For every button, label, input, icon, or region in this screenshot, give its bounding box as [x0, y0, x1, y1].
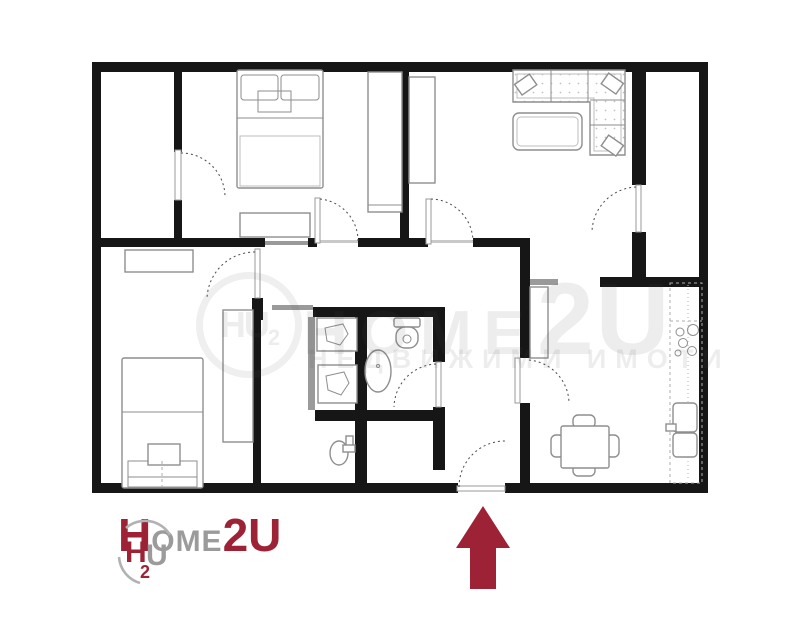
sink-drainer — [673, 433, 697, 457]
emblem-sub-2: 2 — [140, 562, 150, 582]
logo-emblem: H U 2 — [110, 510, 184, 594]
floor-plan-page: HU2 HOME2U НЕДВИЖИМИ ИМОТИ H U 2 HOME2U — [0, 0, 800, 640]
toilet-tank — [394, 318, 420, 327]
table-top — [561, 426, 609, 468]
door-entrance — [457, 441, 505, 491]
door-living-room — [426, 199, 473, 244]
wardrobe — [223, 310, 253, 442]
washing-machine — [317, 318, 357, 351]
living-room-furniture — [409, 70, 625, 183]
door-bedroom-1 — [315, 198, 358, 243]
bedroom-2-furniture — [122, 250, 253, 488]
sink-faucet — [666, 424, 676, 431]
entrance-arrow — [456, 506, 510, 589]
basin — [365, 350, 391, 392]
fridge — [530, 287, 548, 358]
wordmark-2u: 2U — [223, 512, 282, 558]
double-bed — [237, 70, 323, 188]
dresser — [240, 213, 310, 237]
cooktop — [675, 325, 699, 357]
wardrobe — [368, 72, 402, 212]
door-closet — [175, 150, 225, 200]
wardrobe — [409, 77, 435, 183]
door-kitchen — [515, 358, 569, 403]
coffee-table — [513, 113, 582, 150]
door-bathroom — [394, 362, 441, 407]
toilet-bowl — [396, 327, 418, 348]
emblem-arc-top — [126, 521, 170, 535]
washing-machine — [318, 365, 357, 403]
door-balcony — [592, 185, 641, 232]
dining-table — [551, 415, 619, 476]
pillow — [148, 444, 180, 465]
brand-logo: H U 2 HOME2U — [110, 510, 281, 558]
kitchen-furniture — [530, 283, 702, 483]
shelf — [125, 250, 193, 272]
door-bedroom-2 — [207, 249, 260, 299]
bathroom-fixtures — [317, 318, 420, 465]
